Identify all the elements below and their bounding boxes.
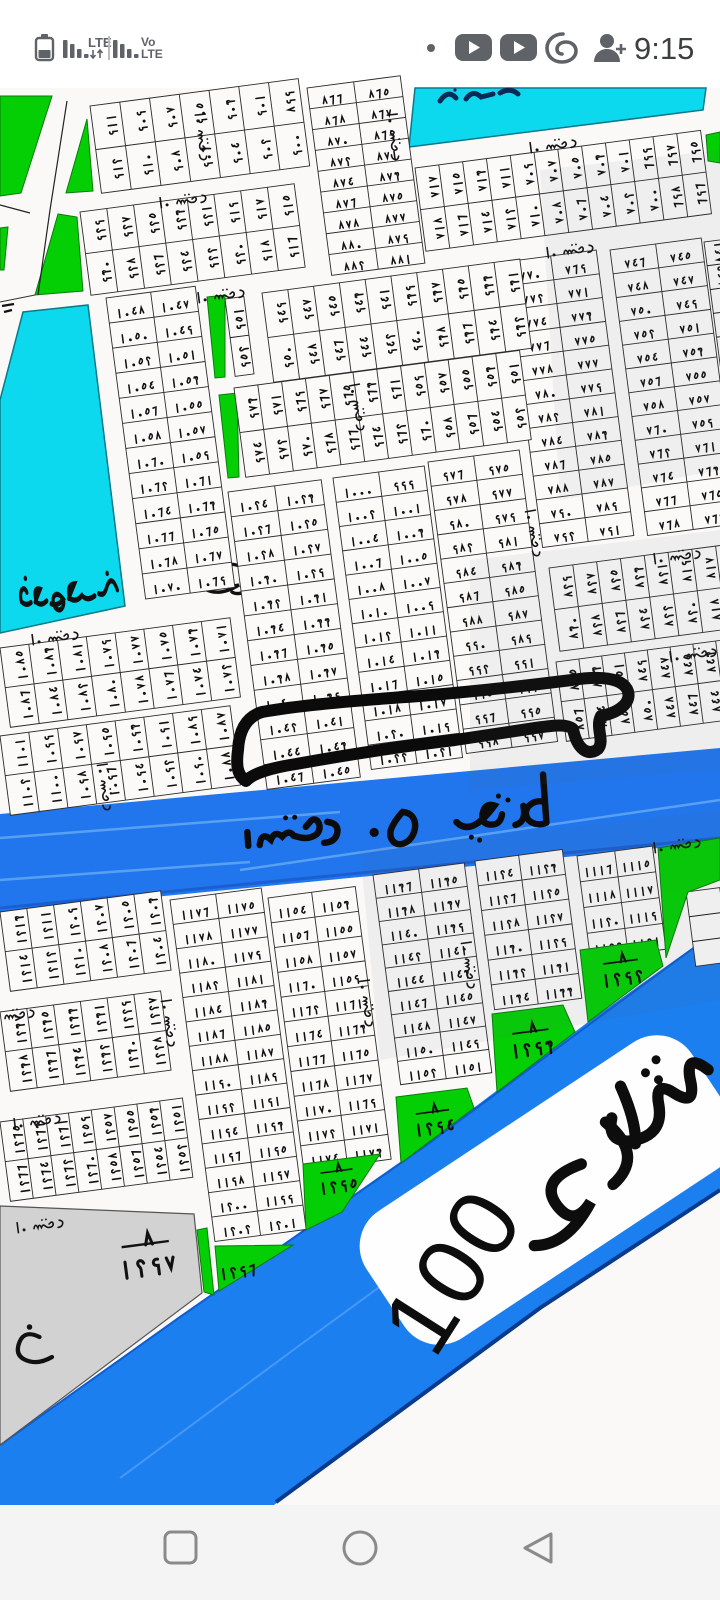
svg-text:9:15: 9:15 xyxy=(634,31,694,66)
svg-text:LTE: LTE xyxy=(141,47,163,61)
